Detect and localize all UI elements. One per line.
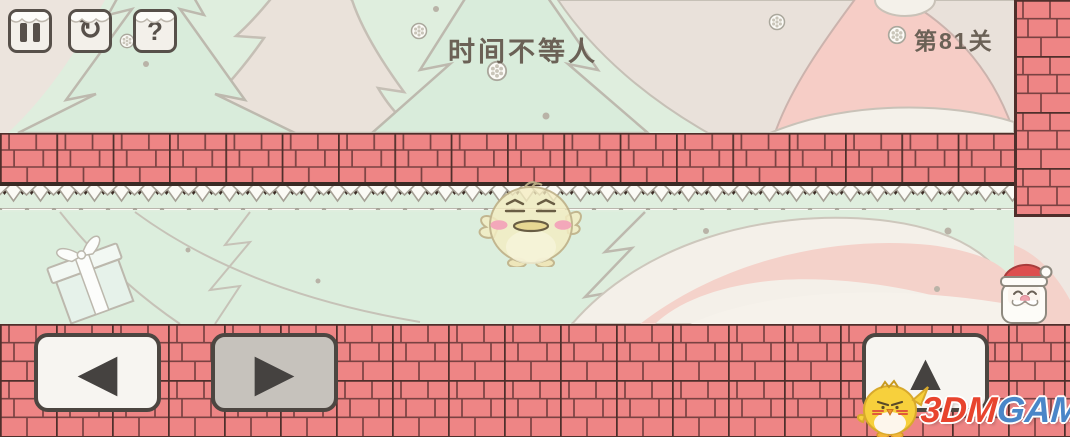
chick-beak: [514, 221, 548, 231]
santa-hat-brim: [1001, 277, 1047, 286]
move-left-button[interactable]: ◀: [34, 333, 161, 412]
snowflake-icon: [120, 34, 133, 47]
game-stage: ◀ ▶ ▲ ↻ ? 时间不等人 第81关: [0, 0, 1070, 437]
watermark-brand-left: 3DM: [920, 389, 999, 430]
snowflake-icon: [770, 15, 785, 30]
watermark-brand-right: GAME: [996, 389, 1070, 430]
pause-button[interactable]: [8, 9, 52, 53]
brick-wall-right: [1014, 0, 1070, 217]
chick-cheek: [491, 220, 508, 230]
hint-button[interactable]: ?: [133, 9, 177, 53]
player-chick: [474, 175, 586, 267]
move-right-button[interactable]: ▶: [211, 333, 338, 412]
snowflake-icon: [889, 27, 906, 44]
chick-belly: [506, 230, 556, 264]
santa-decoration: [995, 263, 1053, 327]
pause-icon: [20, 23, 40, 42]
chick-cheek: [555, 220, 572, 230]
restart-icon: ↻: [78, 16, 102, 45]
santa-hat-pom: [1041, 267, 1052, 278]
level-number: 第81关: [914, 22, 994, 56]
left-arrow-icon: ◀: [78, 347, 118, 399]
right-arrow-icon: ▶: [255, 347, 295, 399]
watermark-brand: 3DMGAME: [920, 389, 1070, 431]
restart-button[interactable]: ↻: [68, 9, 112, 53]
level-title: 时间不等人: [448, 30, 598, 69]
snowflake-icon: [412, 24, 427, 39]
question-icon: ?: [147, 18, 163, 44]
